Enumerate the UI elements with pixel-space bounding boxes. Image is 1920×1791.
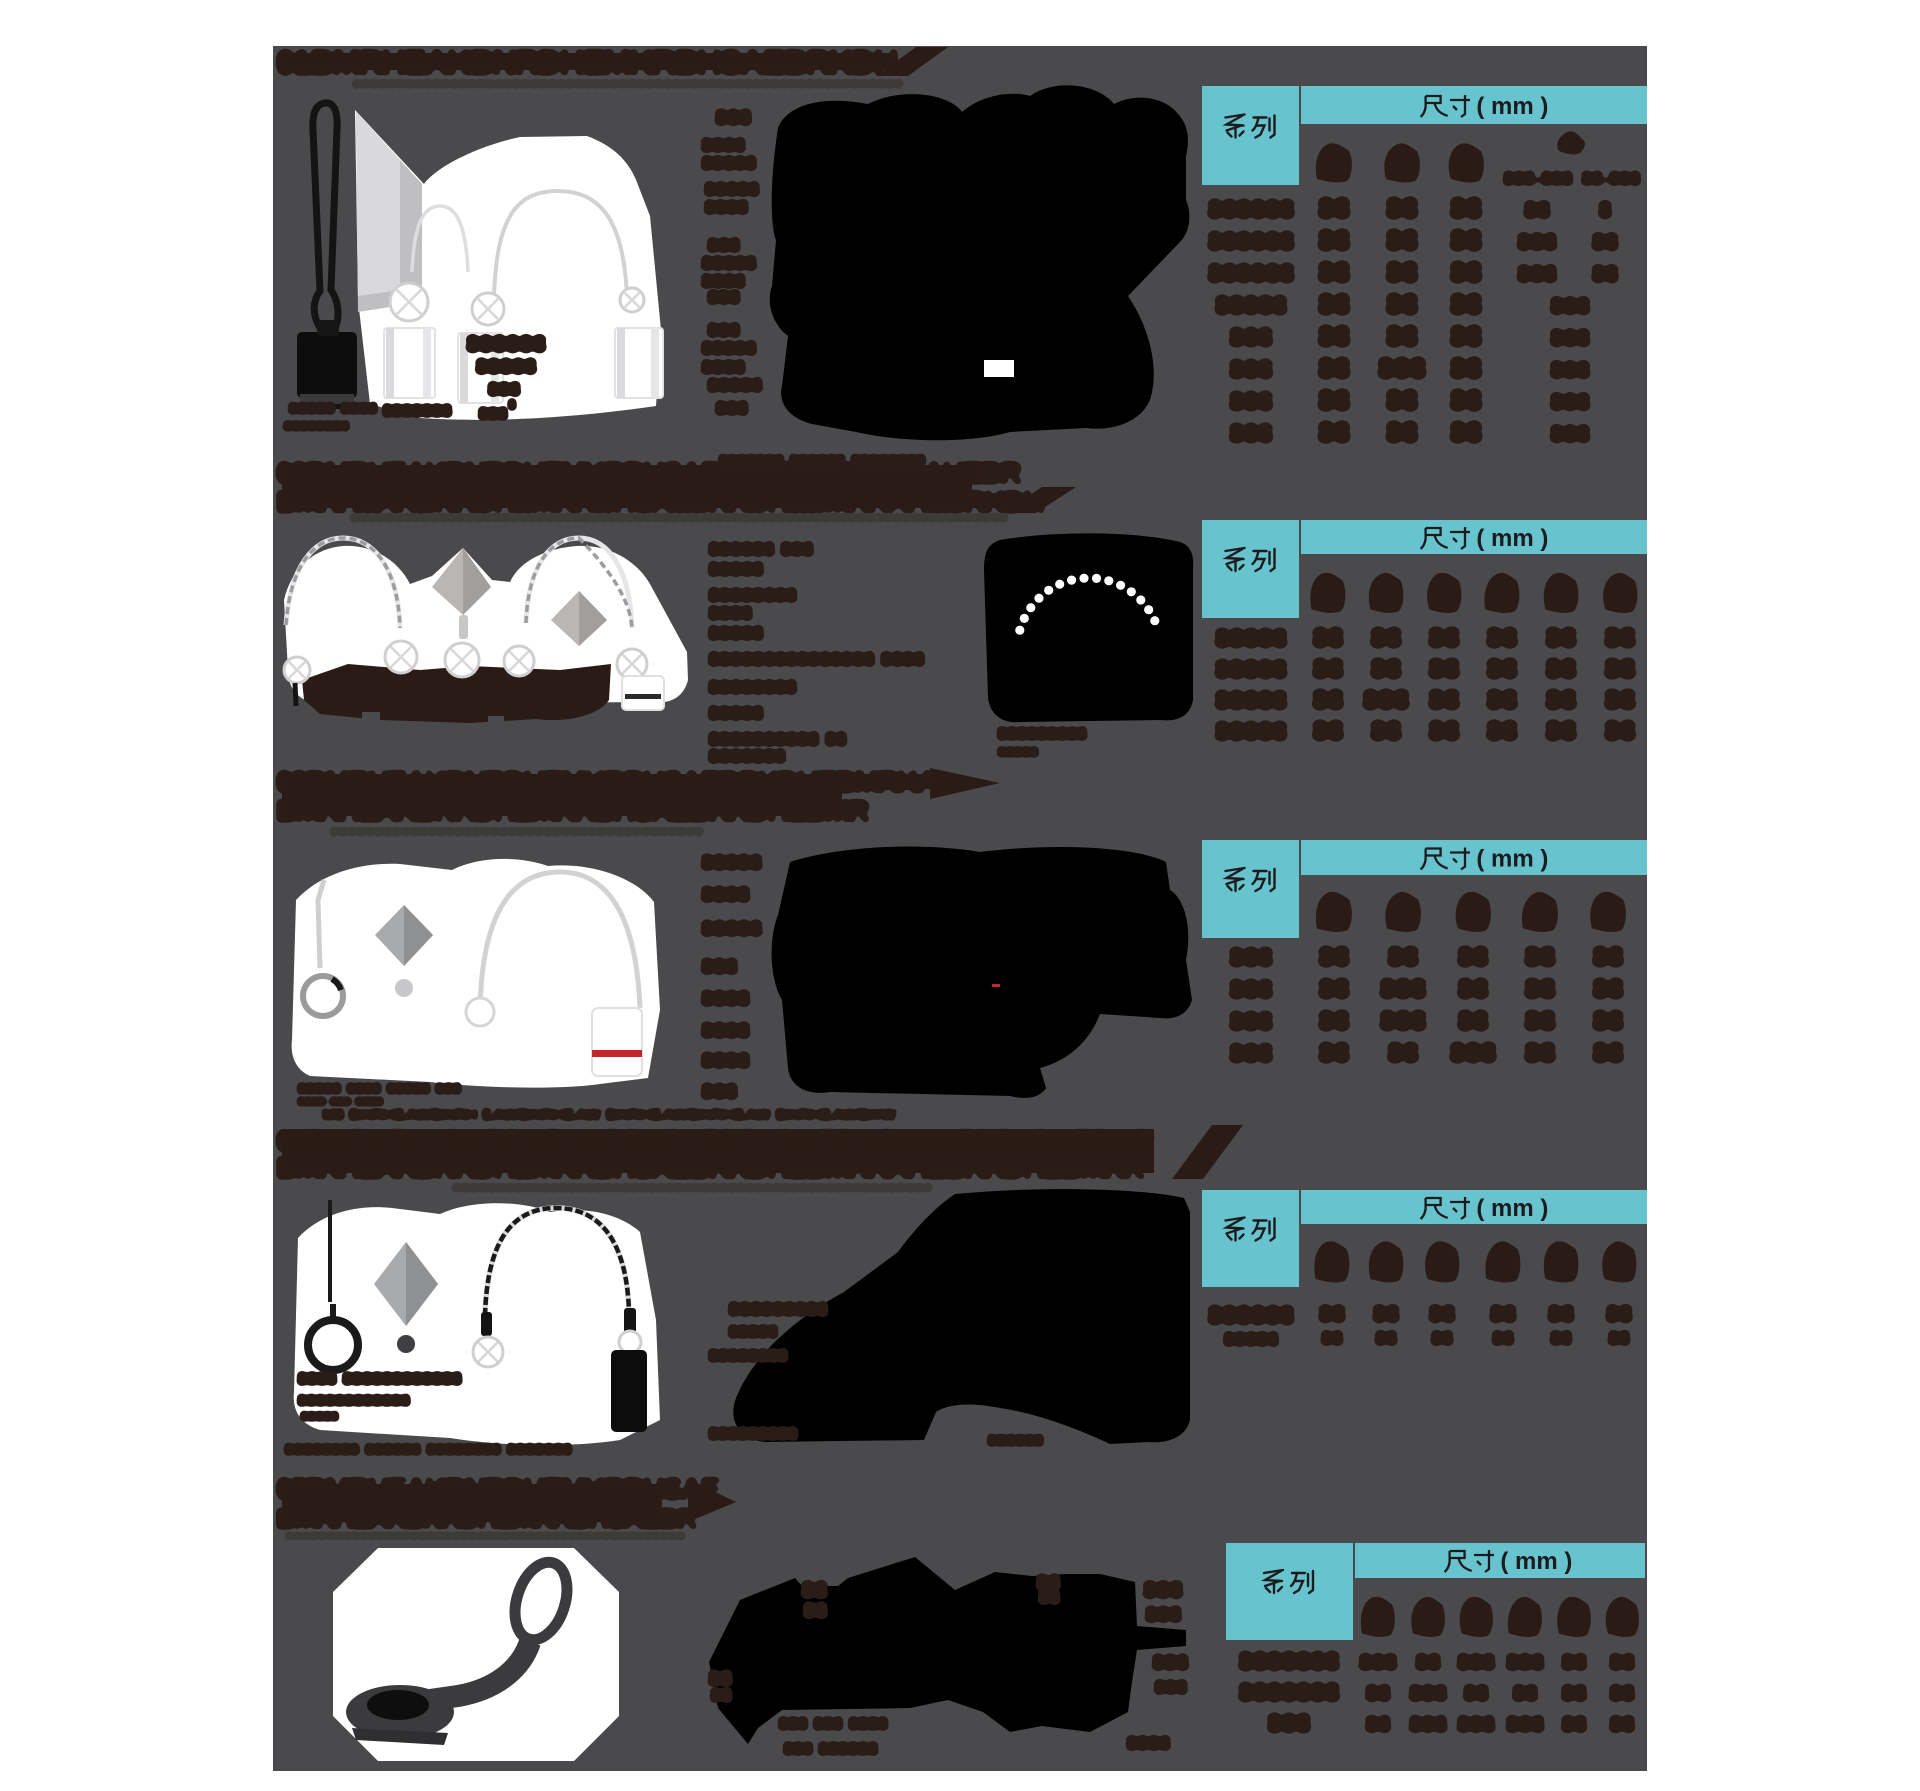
- svg-text:8888888: 8888888: [382, 401, 452, 421]
- svg-text:88: 88: [1428, 622, 1459, 653]
- svg-text:88: 88: [1609, 1649, 1635, 1675]
- svg-text:88: 88: [1365, 1680, 1391, 1706]
- svg-text:88: 88: [1545, 653, 1576, 684]
- svg-text:888888888: 888888888: [708, 1424, 798, 1444]
- svg-text:88: 88: [1386, 321, 1418, 353]
- svg-text:88: 88: [1386, 193, 1418, 225]
- svg-text:88888: 88888: [1215, 623, 1287, 653]
- svg-text:888: 888: [1229, 386, 1272, 416]
- svg-text:88: 88: [1561, 1711, 1587, 1737]
- svg-text:888: 888: [1359, 1649, 1398, 1675]
- svg-text:M8 BKRHEAWBKRH EAWBKRHEAW BKRH: M8 BKRHEAWBKRH EAWBKRHEAW BKRHEAWBKRHEAW…: [322, 1107, 897, 1124]
- svg-text:88: 88: [1312, 684, 1343, 715]
- svg-text:eeeeeeeeeeeeeeeeeeeeeeeeeeeeee: eeeeeeeeeeeeeeeeeeeeeeeeeeeeeeeeeeeeeeee…: [285, 1527, 685, 1544]
- svg-text:88888: 88888: [1215, 685, 1287, 715]
- svg-text:88: 88: [1038, 1587, 1060, 1609]
- svg-text:88: 88: [1318, 353, 1350, 385]
- svg-text:88: 88: [1318, 1037, 1349, 1068]
- svg-text:88: 88: [1561, 1649, 1587, 1675]
- svg-text:88: 88: [1312, 653, 1343, 684]
- svg-text:88888: 88888: [708, 623, 764, 645]
- svg-text:888: 888: [1229, 1038, 1272, 1068]
- svg-text:88: 88: [1318, 385, 1350, 417]
- svg-text:88: 88: [1592, 1005, 1623, 1036]
- svg-text:88888888: 88888888: [708, 1346, 788, 1366]
- svg-text:88: 88: [1492, 1328, 1514, 1350]
- svg-text:888: 888: [1154, 1677, 1187, 1699]
- svg-text:88: 88: [1429, 1301, 1456, 1328]
- svg-text:88: 88: [1318, 289, 1350, 321]
- svg-text:88: 88: [1524, 1037, 1555, 1068]
- svg-text:888: 888: [1409, 1711, 1448, 1737]
- svg-text:888: 888: [1409, 1680, 1448, 1706]
- svg-text:888: 888: [1517, 229, 1557, 256]
- svg-text:888: 888: [1550, 389, 1590, 416]
- svg-text:88888: 88888: [707, 375, 763, 397]
- svg-text:88: 88: [1561, 1680, 1587, 1706]
- svg-text:888 888888: 888 888888: [783, 1739, 878, 1759]
- svg-text:888: 888: [715, 105, 752, 130]
- svg-text:88: 88: [1450, 193, 1482, 225]
- svg-text:88: 88: [1457, 941, 1488, 972]
- svg-text:eeeeeeeeeeeeeeeeeeeeeeeeeeeeee: eeeeeeeeeeeeeeeeeeeeeeeeeeeeeeeeeeeeeeee…: [350, 509, 1009, 526]
- svg-text:888-888: 888-888: [1503, 169, 1573, 190]
- svg-text:888888: 888888: [1208, 258, 1295, 288]
- svg-text:888: 888: [1363, 684, 1410, 715]
- svg-text:88888: 88888: [475, 354, 536, 379]
- svg-text:88: 88: [1457, 1005, 1488, 1036]
- svg-text:88: 88: [1386, 257, 1418, 289]
- svg-text:88: 88: [1524, 197, 1551, 224]
- svg-text:8888: 8888: [701, 1018, 750, 1043]
- svg-text:88: 88: [1548, 1301, 1575, 1328]
- svg-text:88: 88: [1457, 973, 1488, 1004]
- svg-text:888: 888: [1506, 1649, 1545, 1675]
- svg-text:8888: 8888: [1126, 1733, 1171, 1755]
- svg-text:888: 888: [1380, 1005, 1427, 1036]
- svg-text:888888888888888 8888: 888888888888888 8888: [708, 649, 925, 671]
- svg-text:888: 888: [1267, 1708, 1310, 1738]
- svg-text:888: 888: [1152, 1650, 1189, 1675]
- svg-text:888: 888: [1450, 1037, 1497, 1068]
- svg-text:88: 88: [1450, 257, 1482, 289]
- svg-text:888: 888: [1229, 322, 1272, 352]
- svg-text:888888888: 888888888: [997, 724, 1087, 744]
- svg-text:88888: 88888: [1215, 654, 1287, 684]
- svg-text:888888 888: 888888 888: [708, 539, 814, 561]
- svg-text:88: 88: [1450, 225, 1482, 257]
- svg-text:88: 88: [1365, 1711, 1391, 1737]
- svg-text:88: 88: [1387, 1037, 1418, 1068]
- svg-text:88: 88: [1604, 622, 1635, 653]
- svg-text:888: 888: [1457, 1711, 1496, 1737]
- svg-text:88888: 88888: [1215, 290, 1287, 320]
- svg-text:88: 88: [1370, 622, 1401, 653]
- svg-text:88: 88: [1608, 1328, 1630, 1350]
- svg-text:8888 888888888888: 8888 888888888888: [297, 1369, 462, 1389]
- svg-text:888: 888: [1229, 354, 1272, 384]
- svg-text:88: 88: [1463, 1680, 1489, 1706]
- svg-text:88: 88: [1545, 622, 1576, 653]
- svg-text:88888: 88888: [1223, 1329, 1279, 1351]
- svg-text:888: 888: [1457, 1649, 1496, 1675]
- svg-text:88: 88: [1592, 1037, 1623, 1068]
- svg-text:888: 888: [1143, 1577, 1183, 1604]
- svg-text:88: 88: [1524, 973, 1555, 1004]
- svg-text:88: 88: [1318, 941, 1349, 972]
- svg-text:eeeeeeeeeeeeeeeeeeeeeeeeeeeeee: eeeeeeeeeeeeeeeeeeeeeeeeeeeeeeeeeeeeeeee…: [330, 823, 704, 840]
- svg-text:88: 88: [1370, 715, 1401, 746]
- svg-text:888: 888: [701, 954, 738, 979]
- svg-text:88: 88: [1318, 321, 1350, 353]
- svg-text:8888888 888888 88888888: 8888888 888888 88888888: [718, 451, 926, 470]
- svg-text:888: 888: [715, 398, 748, 420]
- svg-text:88: 88: [803, 1598, 827, 1623]
- svg-text:88-888: 88-888: [1581, 169, 1640, 190]
- svg-text:888: 888: [1380, 973, 1427, 1004]
- svg-text:88: 88: [1545, 684, 1576, 715]
- svg-text:88: 88: [1450, 385, 1482, 417]
- svg-text:888: 888: [1229, 418, 1272, 448]
- svg-text:888: 888: [701, 1079, 738, 1104]
- svg-text:88: 88: [1318, 225, 1350, 257]
- svg-text:88: 88: [1609, 1711, 1635, 1737]
- svg-text:88888888: 88888888: [283, 418, 350, 435]
- svg-text:88: 88: [1428, 715, 1459, 746]
- svg-text:888: 888: [1378, 353, 1426, 385]
- svg-text:88: 88: [1375, 1328, 1397, 1350]
- svg-text:888888: 888888: [1208, 226, 1295, 256]
- svg-text:88: 88: [1450, 417, 1482, 449]
- svg-text:88: 88: [1524, 941, 1555, 972]
- svg-text:88: 88: [1318, 257, 1350, 289]
- svg-text:888: 888: [1229, 942, 1272, 972]
- svg-text:88: 88: [1604, 653, 1635, 684]
- svg-text:8888: 8888: [701, 882, 750, 907]
- svg-text:88: 88: [1486, 684, 1517, 715]
- svg-text:88: 88: [1486, 715, 1517, 746]
- svg-text:88: 88: [1450, 289, 1482, 321]
- svg-text:88: 88: [1486, 622, 1517, 653]
- svg-text:888888: 888888: [1208, 194, 1295, 224]
- svg-text:8888: 8888: [701, 986, 750, 1011]
- svg-text:88: 88: [1604, 715, 1635, 746]
- svg-text:88: 88: [1550, 1328, 1572, 1350]
- svg-text:88: 88: [1386, 417, 1418, 449]
- svg-text:88888: 88888: [708, 559, 764, 581]
- svg-text:88: 88: [1318, 973, 1349, 1004]
- svg-text:8888: 8888: [708, 603, 753, 625]
- svg-text:888888: 888888: [1208, 1300, 1295, 1330]
- svg-text:88888 8888: 88888 8888: [288, 399, 378, 418]
- svg-text:88: 88: [1490, 1301, 1517, 1328]
- svg-text:88888: 88888: [701, 850, 762, 875]
- svg-text:88: 88: [1386, 225, 1418, 257]
- svg-text:88: 88: [1415, 1649, 1441, 1675]
- svg-text:88888: 88888: [728, 1322, 778, 1342]
- svg-text:888888: 888888: [987, 1431, 1044, 1450]
- svg-text:( mm ): ( mm ): [1476, 525, 1548, 552]
- svg-text:888: 888: [1517, 261, 1557, 288]
- svg-text:88: 88: [1545, 715, 1576, 746]
- svg-text:888: 888: [1229, 1006, 1272, 1036]
- svg-text:88: 88: [1312, 622, 1343, 653]
- svg-text:888 888 8888: 888 888 8888: [778, 1714, 888, 1734]
- svg-text:8888888: 8888888: [1238, 1677, 1339, 1707]
- svg-text:88: 88: [1604, 684, 1635, 715]
- svg-text:888: 888: [1229, 974, 1272, 1004]
- svg-text:88: 88: [1318, 417, 1350, 449]
- svg-text:( mm ): ( mm ): [1476, 1195, 1548, 1222]
- svg-text:88: 88: [1592, 261, 1619, 288]
- svg-text:88888: 88888: [701, 916, 762, 941]
- svg-text:88: 88: [1592, 941, 1623, 972]
- svg-text:88888888: 88888888: [708, 677, 797, 699]
- svg-text:88888888 888888 88888888 88888: 88888888 888888 88888888 8888888: [284, 1440, 572, 1459]
- svg-text:88: 88: [1373, 1301, 1400, 1328]
- svg-text:88888: 88888: [701, 153, 757, 175]
- svg-text:8888: 8888: [701, 1048, 750, 1073]
- svg-text:888: 888: [1550, 421, 1590, 448]
- svg-text:88: 88: [1486, 653, 1517, 684]
- svg-text:88: 88: [1387, 941, 1418, 972]
- svg-text:8888 888 8888: 8888 888 8888: [297, 1094, 384, 1109]
- svg-text:88: 88: [710, 1685, 732, 1707]
- svg-text:88: 88: [1318, 1005, 1349, 1036]
- svg-text:888: 888: [707, 287, 740, 309]
- svg-text:888: 888: [1550, 293, 1590, 320]
- svg-text:888: 888: [1550, 325, 1590, 352]
- svg-text:( mm ): ( mm ): [1476, 93, 1548, 120]
- svg-text:88888: 88888: [708, 703, 764, 725]
- svg-text:88: 88: [1386, 289, 1418, 321]
- svg-text:( mm ): ( mm ): [1500, 1548, 1572, 1575]
- svg-text:88: 88: [1524, 1005, 1555, 1036]
- svg-text:( mm ): ( mm ): [1476, 845, 1548, 872]
- svg-text:88: 88: [1318, 193, 1350, 225]
- svg-text:88: 88: [1370, 653, 1401, 684]
- svg-text:888: 888: [1550, 357, 1590, 384]
- svg-text:88: 88: [1428, 684, 1459, 715]
- svg-text:88: 88: [1428, 653, 1459, 684]
- svg-text:88: 88: [1592, 229, 1619, 256]
- svg-text:eeeeeeeeeeeeeeeeeeeeeeeeeeeeee: eeeeeeeeeeeeeeeeeeeeeeeeeeeeeeeeeeeeeeee…: [452, 1179, 933, 1196]
- svg-text:88888: 88888: [1215, 716, 1287, 746]
- svg-text:88: 88: [1512, 1680, 1538, 1706]
- svg-text:88: 88: [1386, 385, 1418, 417]
- svg-text:888: 888: [1145, 1602, 1182, 1627]
- svg-text:8: 8: [1598, 197, 1611, 224]
- svg-text:88: 88: [1609, 1680, 1635, 1706]
- svg-text:8888888: 8888888: [708, 746, 786, 768]
- svg-text:88: 88: [1319, 1301, 1346, 1328]
- svg-text:88: 88: [1312, 715, 1343, 746]
- svg-text:888: 888: [1506, 1711, 1545, 1737]
- svg-text:88: 88: [1450, 321, 1482, 353]
- svg-text:88: 88: [1606, 1301, 1633, 1328]
- svg-text:88: 88: [1450, 353, 1482, 385]
- svg-text:8888: 8888: [704, 197, 749, 219]
- svg-text:eeeeeeeeeeeeeeeeeeeeeeeeeeeeee: eeeeeeeeeeeeeeeeeeeeeeeeeeeeeeeeeeeeeeee…: [352, 75, 904, 92]
- svg-text:88: 88: [1321, 1328, 1343, 1350]
- svg-text:88888: 88888: [997, 744, 1039, 761]
- svg-text:88888: 88888: [300, 1408, 339, 1424]
- svg-text:88: 88: [1431, 1328, 1453, 1350]
- svg-text:88: 88: [1592, 973, 1623, 1004]
- svg-text:8888888: 8888888: [1238, 1646, 1339, 1676]
- svg-text:888888888: 888888888: [728, 1299, 828, 1321]
- svg-text:8: 8: [508, 397, 517, 414]
- svg-text:888: 888: [478, 404, 508, 424]
